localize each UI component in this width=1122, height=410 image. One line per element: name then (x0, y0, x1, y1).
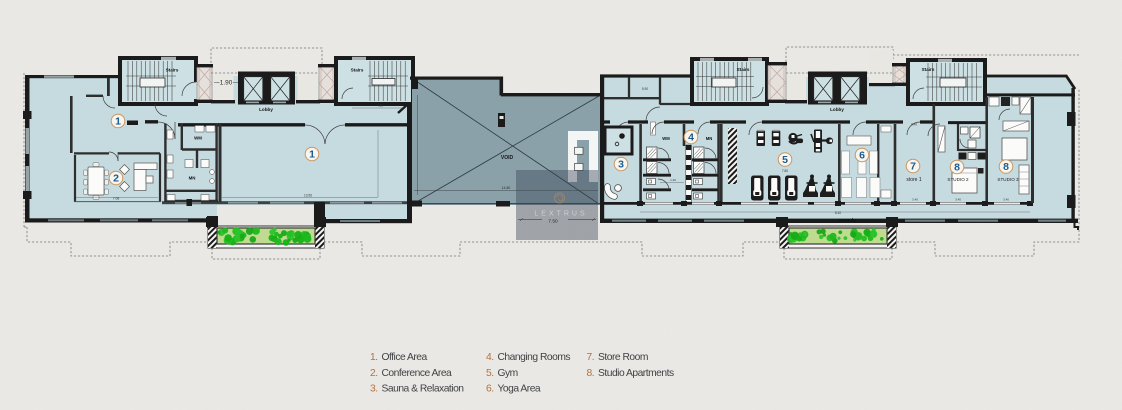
svg-text:Lobby: Lobby (830, 107, 844, 112)
svg-text:STUDIO 2: STUDIO 2 (947, 177, 969, 182)
svg-text:8.: 8. (587, 368, 595, 379)
svg-text:Yoga Area: Yoga Area (498, 384, 541, 395)
svg-text:Stairs: Stairs (922, 67, 935, 72)
svg-text:8: 8 (954, 162, 960, 174)
svg-text:STUDIO 3: STUDIO 3 (997, 177, 1019, 182)
svg-text:veranda: veranda (838, 218, 856, 223)
svg-text:7.08: 7.08 (113, 197, 120, 201)
svg-text:3.: 3. (370, 384, 378, 395)
svg-text:Lobby: Lobby (259, 107, 273, 112)
svg-text:Changing Rooms: Changing Rooms (498, 352, 571, 363)
svg-text:2: 2 (113, 173, 119, 185)
svg-text:Conference Area: Conference Area (382, 368, 453, 379)
svg-text:2.: 2. (370, 368, 378, 379)
svg-text:Sauna & Relaxation: Sauna & Relaxation (382, 384, 465, 395)
svg-text:WM: WM (194, 136, 202, 141)
svg-text:1: 1 (115, 116, 121, 128)
svg-text:MN: MN (706, 136, 713, 141)
svg-text:3.40: 3.40 (1003, 198, 1009, 202)
svg-text:3.40: 3.40 (911, 123, 917, 127)
svg-text:4: 4 (688, 132, 694, 144)
svg-text:14.80: 14.80 (502, 186, 511, 190)
svg-text:5.90: 5.90 (642, 87, 648, 91)
svg-text:LEXTRUS: LEXTRUS (534, 211, 587, 218)
svg-text:WM: WM (662, 136, 670, 141)
svg-text:7: 7 (910, 161, 916, 173)
svg-text:8.30: 8.30 (835, 211, 841, 215)
svg-text:Stairs: Stairs (737, 67, 750, 72)
svg-text:store 1: store 1 (906, 177, 922, 183)
svg-text:7.: 7. (587, 352, 595, 363)
svg-text:Store Room: Store Room (598, 352, 648, 363)
svg-text:Gym: Gym (498, 368, 518, 379)
svg-text:4.16: 4.16 (377, 104, 383, 108)
svg-text:Stairs: Stairs (351, 68, 364, 73)
svg-text:3: 3 (618, 159, 624, 171)
svg-text:4.: 4. (486, 352, 494, 363)
svg-text:Studio Apartments: Studio Apartments (598, 368, 674, 379)
svg-text:1.40: 1.40 (670, 178, 676, 182)
svg-text:3.40: 3.40 (912, 198, 918, 202)
svg-text:5: 5 (782, 154, 788, 166)
svg-text:5.: 5. (486, 368, 494, 379)
svg-text:MN: MN (189, 176, 196, 181)
svg-text:13.56: 13.56 (304, 194, 312, 198)
svg-text:Office Area: Office Area (382, 352, 428, 363)
svg-text:-1.90: -1.90 (218, 80, 233, 87)
svg-text:Stairs: Stairs (166, 68, 179, 73)
svg-text:6: 6 (859, 150, 865, 162)
svg-text:VOID: VOID (501, 155, 514, 161)
svg-text:1: 1 (309, 149, 315, 161)
svg-text:7.80: 7.80 (782, 169, 788, 173)
svg-text:1.: 1. (370, 352, 378, 363)
svg-text:7.50: 7.50 (548, 219, 558, 225)
svg-text:3.40: 3.40 (955, 198, 961, 202)
svg-text:6.: 6. (486, 384, 494, 395)
svg-text:8: 8 (1003, 161, 1009, 173)
